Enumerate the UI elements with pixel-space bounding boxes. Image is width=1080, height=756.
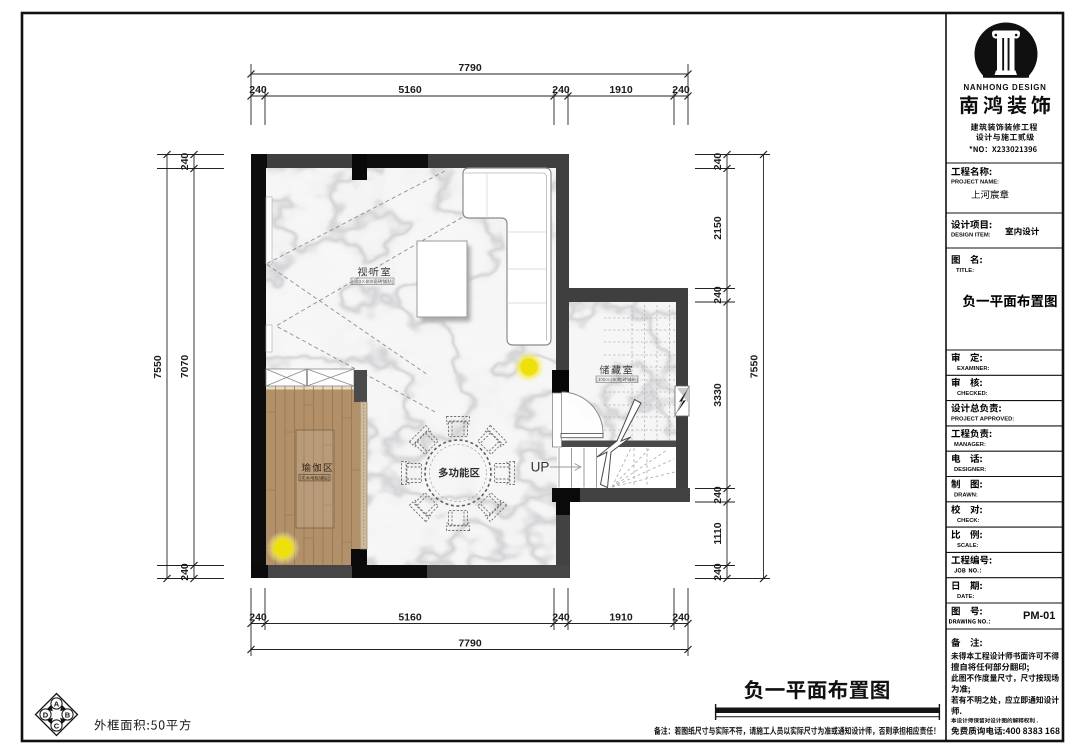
svg-text:3330: 3330 bbox=[712, 383, 724, 407]
svg-text:1910: 1910 bbox=[609, 612, 633, 624]
svg-text:D: D bbox=[43, 710, 49, 719]
svg-text:1910: 1910 bbox=[609, 84, 633, 96]
svg-text:240: 240 bbox=[552, 612, 570, 624]
svg-text:CHECKED:: CHECKED: bbox=[957, 391, 988, 397]
svg-text:240: 240 bbox=[249, 84, 267, 96]
svg-text:C: C bbox=[54, 721, 60, 730]
svg-text:240: 240 bbox=[179, 563, 191, 581]
svg-text:PROJECT NAME:: PROJECT NAME: bbox=[951, 180, 999, 186]
svg-text:5160: 5160 bbox=[398, 612, 422, 624]
svg-text:240: 240 bbox=[712, 153, 724, 171]
svg-text:PM-01: PM-01 bbox=[1023, 610, 1055, 622]
svg-text:TITLE:: TITLE: bbox=[956, 268, 974, 274]
svg-text:DATE:: DATE: bbox=[957, 594, 974, 600]
svg-text:2150: 2150 bbox=[712, 216, 724, 240]
svg-text:EXAMINER:: EXAMINER: bbox=[957, 366, 990, 372]
svg-text:PROJECT APPROVED:: PROJECT APPROVED: bbox=[951, 417, 1014, 423]
svg-text:1110: 1110 bbox=[712, 522, 724, 544]
svg-text:DRAWN:: DRAWN: bbox=[954, 493, 978, 499]
svg-text:7550: 7550 bbox=[152, 355, 164, 379]
svg-text:240: 240 bbox=[712, 286, 724, 304]
svg-text:240: 240 bbox=[672, 612, 690, 624]
svg-text:A: A bbox=[54, 699, 60, 708]
svg-text:DESIGN ITEM:: DESIGN ITEM: bbox=[951, 233, 991, 239]
svg-text:240: 240 bbox=[672, 84, 690, 96]
svg-text:CHECK:: CHECK: bbox=[957, 518, 980, 524]
svg-text:240: 240 bbox=[552, 84, 570, 96]
svg-text:240: 240 bbox=[249, 612, 267, 624]
svg-text:7070: 7070 bbox=[179, 355, 191, 379]
svg-text:B: B bbox=[65, 710, 71, 719]
svg-text:DESIGNER:: DESIGNER: bbox=[954, 467, 986, 473]
svg-text:7790: 7790 bbox=[458, 62, 482, 74]
svg-text:SCALE:: SCALE: bbox=[957, 543, 979, 549]
svg-text:240: 240 bbox=[712, 563, 724, 581]
svg-text:NANHONG DESIGN: NANHONG DESIGN bbox=[963, 83, 1046, 92]
svg-text:7550: 7550 bbox=[749, 355, 761, 379]
svg-text:MANAGER:: MANAGER: bbox=[954, 442, 986, 448]
svg-text:240: 240 bbox=[712, 486, 724, 504]
svg-text:5160: 5160 bbox=[398, 84, 422, 96]
svg-text:UP: UP bbox=[531, 460, 550, 475]
svg-text:7790: 7790 bbox=[458, 638, 482, 650]
svg-text:240: 240 bbox=[179, 153, 191, 171]
